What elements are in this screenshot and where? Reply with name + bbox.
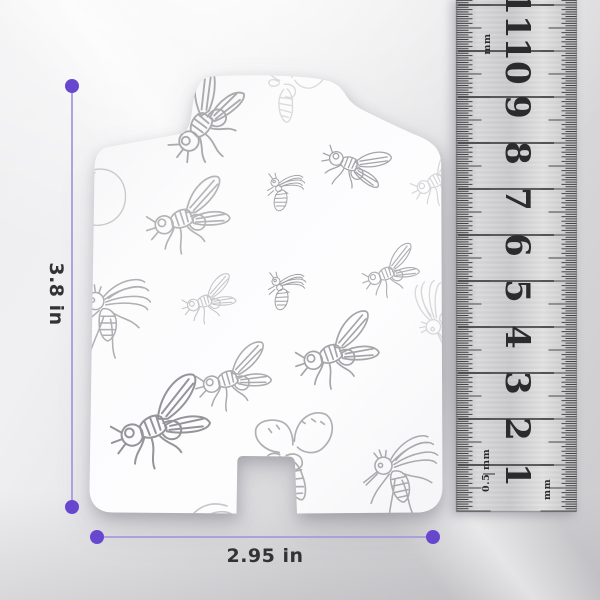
width-dimension-label: 2.95 in <box>226 545 303 567</box>
height-bottom-endpoint-dot <box>65 500 79 514</box>
product-dimension-diagram: 1234567891011 mm 0.5 mm mm 3.8 in 2.95 i… <box>0 0 600 600</box>
width-right-endpoint-dot <box>426 530 440 544</box>
height-top-endpoint-dot <box>65 79 79 93</box>
dimension-annotations <box>0 0 600 600</box>
width-left-endpoint-dot <box>90 530 104 544</box>
height-dimension-label: 3.8 in <box>45 262 67 325</box>
